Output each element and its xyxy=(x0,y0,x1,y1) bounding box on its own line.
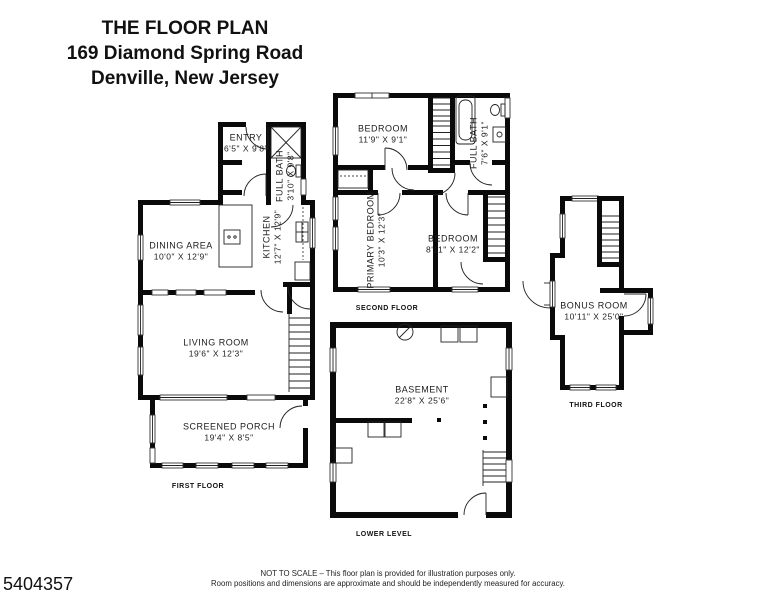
lower-level-plan xyxy=(330,322,512,518)
staircase-second-floor xyxy=(433,126,450,165)
door-arc-basement xyxy=(464,493,486,515)
floorplan-drawing xyxy=(0,0,776,600)
disclaimer-line1: NOT TO SCALE – This floor plan is provid… xyxy=(0,569,776,579)
room-label-bedroom-right: BEDROOM 8'11" X 12'2" xyxy=(426,233,480,256)
caption-first-floor: FIRST FLOOR xyxy=(172,483,224,490)
room-label-basement: BASEMENT 22'8" X 25'6" xyxy=(395,384,450,407)
staircase-first-floor xyxy=(289,314,310,392)
room-label-full-bath-2: FULL BATH 7'6" X 9'1" xyxy=(468,117,491,169)
sink-icon xyxy=(493,127,506,142)
room-label-screened-porch: SCREENED PORCH 19'4" X 8'5" xyxy=(183,421,275,444)
third-floor-plan xyxy=(523,196,653,390)
caption-third-floor: THIRD FLOOR xyxy=(569,402,622,409)
counter xyxy=(295,262,310,280)
staircase-basement xyxy=(483,450,506,486)
room-label-primary-bedroom: PRIMARY BEDROOM 10'3" X 12'3" xyxy=(365,191,388,288)
room-label-bedroom-top: BEDROOM 11'9" X 9'1" xyxy=(358,123,408,146)
floor-plan-page: THE FLOOR PLAN 169 Diamond Spring Road D… xyxy=(0,0,776,600)
caption-lower-level: LOWER LEVEL xyxy=(356,531,412,538)
disclaimer: NOT TO SCALE – This floor plan is provid… xyxy=(0,569,776,589)
support-columns xyxy=(437,404,487,440)
room-label-bonus-room: BONUS ROOM 10'11" X 25'0" xyxy=(560,300,628,323)
stove-icon xyxy=(296,222,308,242)
hall-closet xyxy=(338,170,368,188)
kitchen-island xyxy=(219,205,252,267)
room-label-entry: ENTRY 6'5" X 9'8" xyxy=(224,132,268,155)
room-label-living-room: LIVING ROOM 19'6" X 12'3" xyxy=(183,337,249,360)
room-label-dining-area: DINING AREA 10'0" X 12'9" xyxy=(149,240,213,263)
room-label-kitchen: KITCHEN 12'7" X 12'9" xyxy=(261,210,284,265)
toilet-icon-2 xyxy=(491,104,506,116)
room-label-full-bath-1: FULL BATH 3'10" X 9'8" xyxy=(274,150,297,202)
listing-id: 5404357 xyxy=(3,574,73,595)
staircase-third-floor xyxy=(602,216,619,258)
linen-closet xyxy=(433,98,450,121)
stairwell-down xyxy=(488,197,505,253)
caption-second-floor: SECOND FLOOR xyxy=(356,305,418,312)
disclaimer-line2: Room positions and dimensions are approx… xyxy=(0,579,776,589)
